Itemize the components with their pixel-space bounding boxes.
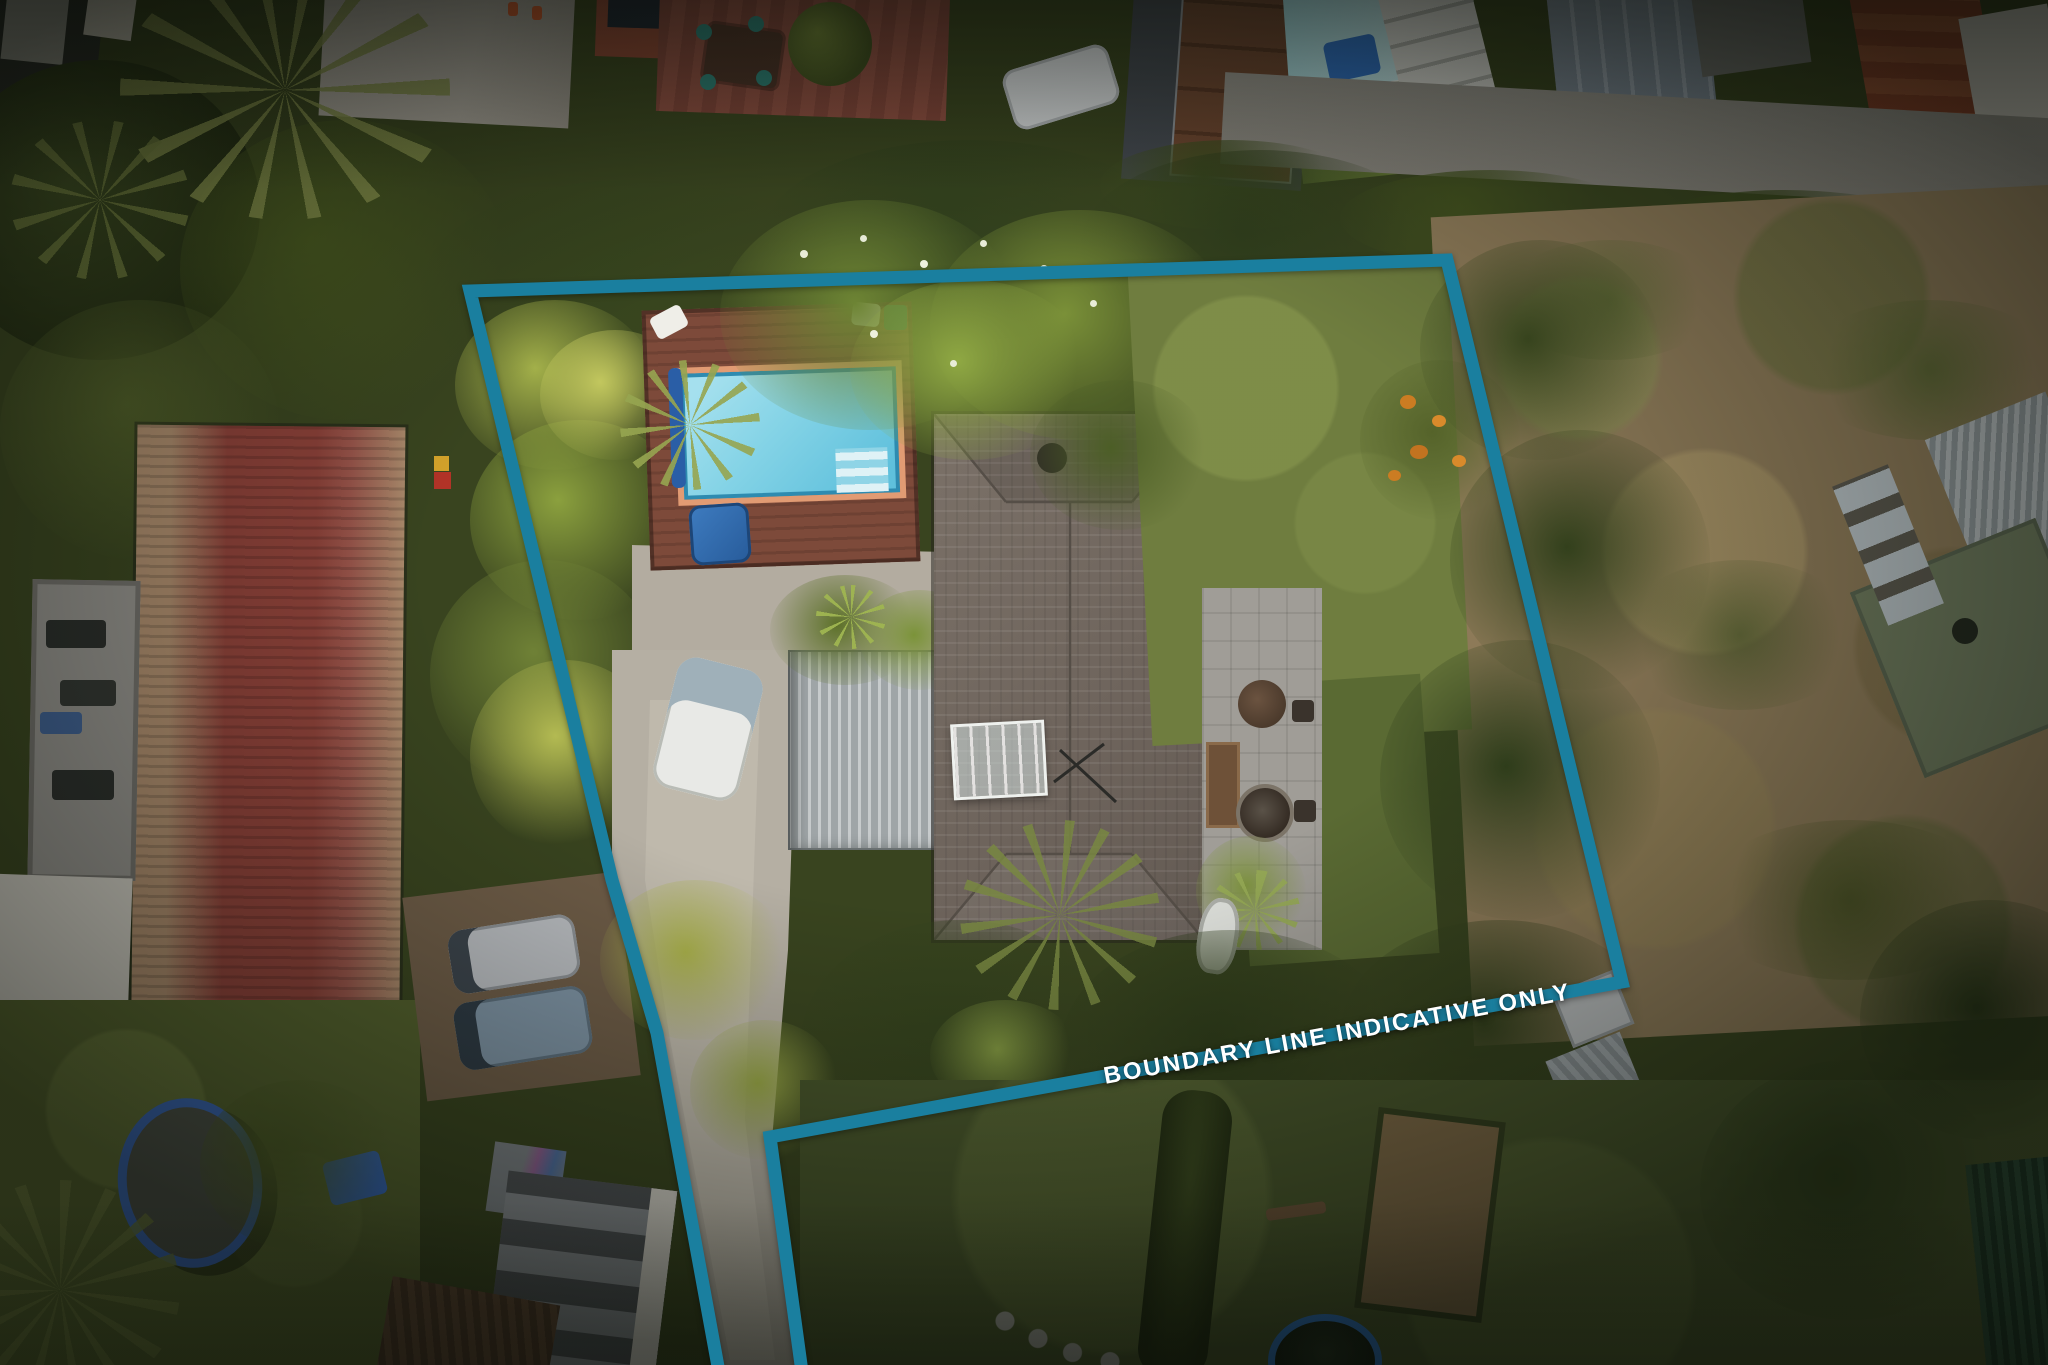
- aerial-photograph: BOUNDARY LINE INDICATIVE ONLY: [0, 0, 2048, 1365]
- boundary-overlay: [0, 0, 2048, 1365]
- boundary-line: [470, 260, 1622, 1365]
